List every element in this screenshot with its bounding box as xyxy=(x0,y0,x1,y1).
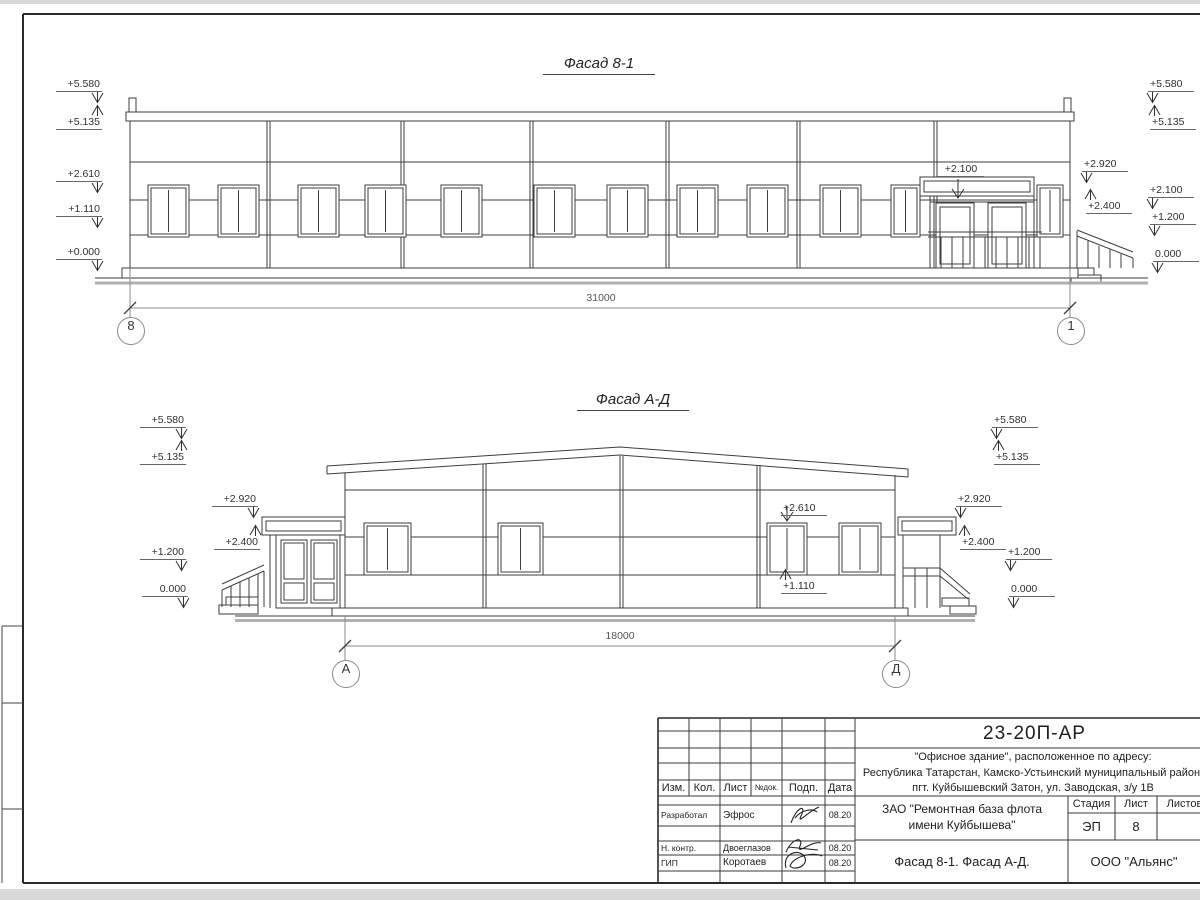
axis-bubble-d: Д xyxy=(882,660,910,688)
left-margin-boxes xyxy=(2,626,23,883)
row-name: Эфрос xyxy=(723,805,781,826)
elevation-mark: +2.400 xyxy=(1086,200,1132,214)
facade2-dimension-label: 18000 xyxy=(580,630,660,642)
signatures xyxy=(785,807,822,868)
elevation-mark: +1.200 xyxy=(1006,546,1052,560)
row-role: Разработал xyxy=(661,805,719,826)
elevation-mark: +1.110 xyxy=(56,203,102,217)
company-name: ООО "Альянс" xyxy=(1068,840,1200,883)
door-elevation-mark: +2.100 xyxy=(938,163,984,177)
row-date: 08.20 xyxy=(825,855,855,871)
elevation-mark: +2.610 xyxy=(56,168,102,182)
window-sill-mark: +1.110 xyxy=(781,580,827,594)
sheet-title: Фасад 8-1. Фасад А-Д. xyxy=(857,840,1067,883)
sheet-label: Лист xyxy=(1115,796,1157,813)
facade2-left-porch xyxy=(262,517,345,608)
elevation-mark: +2.920 xyxy=(212,493,258,507)
elevation-mark: +0.000 xyxy=(56,246,102,260)
row-role: ГИП xyxy=(661,855,719,871)
drawing-sheet: { "facade1": { "title": "Фасад 8-1", "di… xyxy=(0,0,1200,900)
axis-bubble-1: 1 xyxy=(1057,317,1085,345)
sheet-value: 8 xyxy=(1115,813,1157,840)
doc-number: 23-20П-АР xyxy=(857,719,1200,748)
col-data: Дата xyxy=(825,780,855,796)
elevation-mark: +5.135 xyxy=(56,116,102,130)
stage-value: ЭП xyxy=(1068,813,1115,840)
facade1-building xyxy=(95,98,1148,283)
facade1-dimension-label: 31000 xyxy=(561,292,641,304)
client-name: ЗАО "Ремонтная база флота имени Куйбышев… xyxy=(857,801,1067,833)
row-name: Коротаев xyxy=(723,855,781,871)
col-list: Лист xyxy=(720,780,751,796)
elevation-mark: 0.000 xyxy=(142,583,188,597)
elevation-mark: +5.135 xyxy=(1150,116,1196,130)
project-address: "Офисное здание", расположенное по адрес… xyxy=(858,750,1200,797)
facade1-title: Фасад 8-1 xyxy=(543,55,655,75)
stage-label: Стадия xyxy=(1068,796,1115,813)
axis-bubble-8: 8 xyxy=(117,317,145,345)
elevation-mark: +2.100 xyxy=(1148,184,1194,198)
window-head-mark: +2.610 xyxy=(781,502,827,516)
facade2-title: Фасад А-Д xyxy=(577,391,689,411)
elevation-mark: +2.920 xyxy=(956,493,1002,507)
col-ndok: №док. xyxy=(751,780,782,796)
elevation-mark: +5.580 xyxy=(992,414,1038,428)
col-podp: Подп. xyxy=(782,780,825,796)
row-role: Н. контр. xyxy=(661,841,719,855)
elevation-mark: +1.200 xyxy=(1150,211,1196,225)
elevation-mark: +5.580 xyxy=(1148,78,1194,92)
row-date: 08.20 xyxy=(825,841,855,855)
axis-bubble-a: А xyxy=(332,660,360,688)
elevation-mark: +2.400 xyxy=(960,536,1006,550)
elevation-mark: +5.135 xyxy=(994,451,1040,465)
elevation-mark: 0.000 xyxy=(1009,583,1055,597)
elevation-mark: +2.920 xyxy=(1082,158,1128,172)
col-izm: Изм. xyxy=(658,780,689,796)
facade2-left-stairs xyxy=(219,565,264,614)
row-name: Двоеглазов xyxy=(723,841,781,855)
elevation-mark: +5.580 xyxy=(56,78,102,92)
col-kol: Кол. xyxy=(689,780,720,796)
elevation-mark: +1.200 xyxy=(140,546,186,560)
row-date: 08.20 xyxy=(825,805,855,826)
sheets-label: Листов xyxy=(1157,796,1200,813)
elevation-mark: 0.000 xyxy=(1153,248,1199,262)
elevation-mark: +5.580 xyxy=(140,414,186,428)
elevation-mark: +5.135 xyxy=(140,451,186,465)
facade2-building xyxy=(219,447,976,616)
elevation-mark: +2.400 xyxy=(214,536,260,550)
